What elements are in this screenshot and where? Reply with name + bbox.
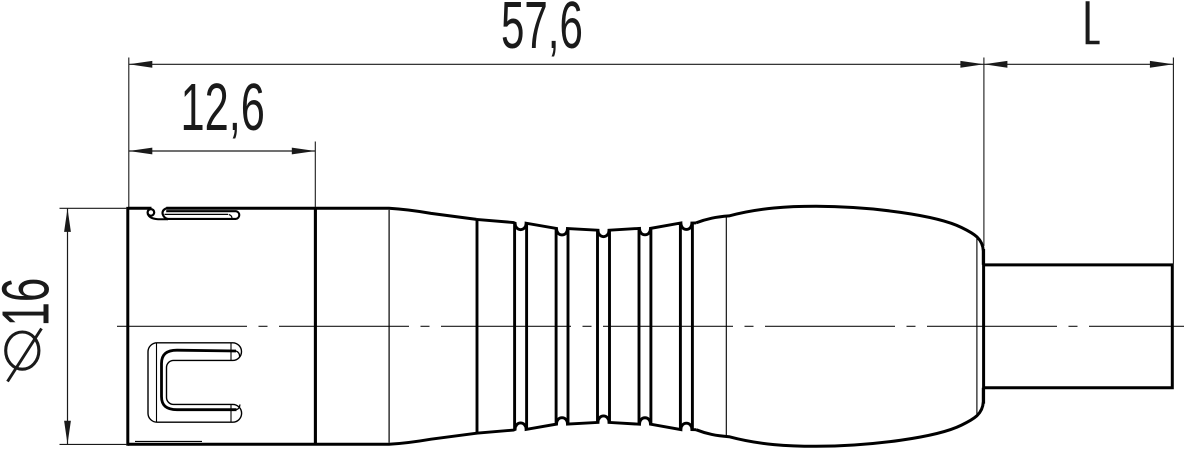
svg-text:57,6: 57,6 — [501, 0, 583, 62]
svg-text:16: 16 — [0, 278, 63, 327]
svg-text:12,6: 12,6 — [181, 69, 265, 144]
